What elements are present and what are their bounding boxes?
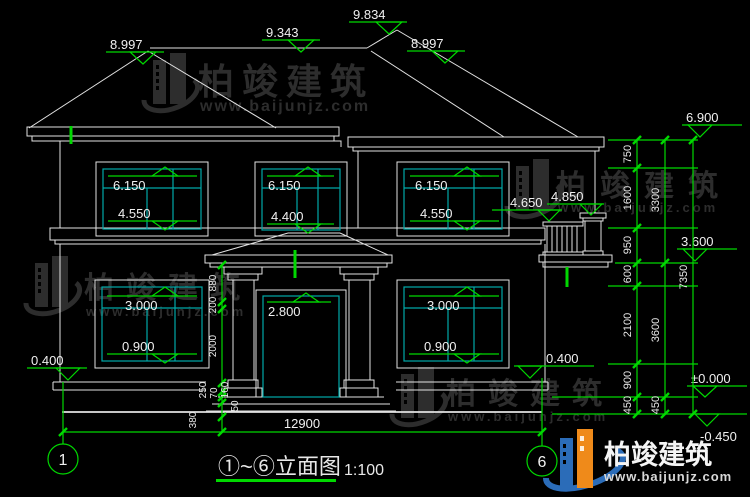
dim-3600: 3600 xyxy=(650,318,662,342)
label-f2-mid-top: 6.150 xyxy=(268,178,301,193)
marker-roof-left-peak: 8.997 xyxy=(110,37,143,52)
marker-ground: ±0.000 xyxy=(691,371,731,386)
marker-floor-slab: 3.600 xyxy=(681,234,714,249)
dim-7350: 7350 xyxy=(678,265,690,289)
dim-50: 50 xyxy=(230,400,241,412)
drawing-scale: 1:100 xyxy=(344,462,384,479)
dim-overall-width: 12900 xyxy=(284,416,320,431)
marker-pillar-top: 4.850 xyxy=(551,189,584,204)
dim-200: 200 xyxy=(208,296,219,313)
cad-elevation-screenshot: 柏竣建筑 www.baijunjz.com 柏竣建筑 www.baijunjz.… xyxy=(0,0,750,497)
dim-2100: 2100 xyxy=(622,313,634,337)
watermark-brand-text: 柏竣建筑 xyxy=(198,61,374,102)
marker-ridge: 9.343 xyxy=(266,25,299,40)
label-f1-right-sill: 0.900 xyxy=(424,339,457,354)
marker-plinth-left: 0.400 xyxy=(31,353,64,368)
dim-2000: 2000 xyxy=(208,334,219,357)
label-f2-right-sill: 4.550 xyxy=(420,206,453,221)
axis-number-start: 1 xyxy=(59,452,68,469)
elevation-drawing: 柏竣建筑 www.baijunjz.com 柏竣建筑 www.baijunjz.… xyxy=(0,0,750,497)
brand-name: 柏竣建筑 xyxy=(604,439,712,470)
dim-160: 160 xyxy=(220,381,231,398)
marker-rail-top: 4.650 xyxy=(510,195,543,210)
brand-url: www.baijunjz.com xyxy=(603,469,732,484)
dim-880: 880 xyxy=(208,274,219,291)
title-underline xyxy=(216,479,336,482)
label-f2-mid-sill: 4.400 xyxy=(271,209,304,224)
marker-eave-right: 6.900 xyxy=(686,110,719,125)
dim-450: 450 xyxy=(622,396,634,414)
dim-750: 750 xyxy=(622,145,634,163)
dim-250: 250 xyxy=(198,381,209,398)
watermark-brand-text: 柏竣建筑 xyxy=(84,271,252,305)
label-f1-left-top: 3.000 xyxy=(125,298,158,313)
label-door-top: 2.800 xyxy=(268,304,301,319)
label-f2-right-top: 6.150 xyxy=(415,178,448,193)
marker-main-peak: 9.834 xyxy=(353,7,386,22)
marker-roof-right: 8.997 xyxy=(411,36,444,51)
axis-number-end: 6 xyxy=(538,454,547,471)
dim-3300: 3300 xyxy=(650,188,662,212)
label-f2-left-top: 6.150 xyxy=(113,178,146,193)
label-f1-left-sill: 0.900 xyxy=(122,339,155,354)
dim-600: 600 xyxy=(622,265,634,283)
label-f2-left-sill: 4.550 xyxy=(118,206,151,221)
dim-380: 380 xyxy=(188,411,199,428)
dim-450b: 450 xyxy=(650,396,662,414)
marker-plinth-right: 0.400 xyxy=(546,351,579,366)
watermark-top: 柏竣建筑 www.baijunjz.com xyxy=(144,53,374,115)
dim-1600: 1600 xyxy=(622,186,634,210)
label-f1-right-top: 3.000 xyxy=(427,298,460,313)
drawing-title: ①~⑥立面图 xyxy=(218,454,341,479)
watermark-url-text: www.baijunjz.com xyxy=(199,98,370,115)
dim-70: 70 xyxy=(209,387,220,399)
dim-900: 900 xyxy=(622,371,634,389)
dim-950: 950 xyxy=(622,236,634,254)
